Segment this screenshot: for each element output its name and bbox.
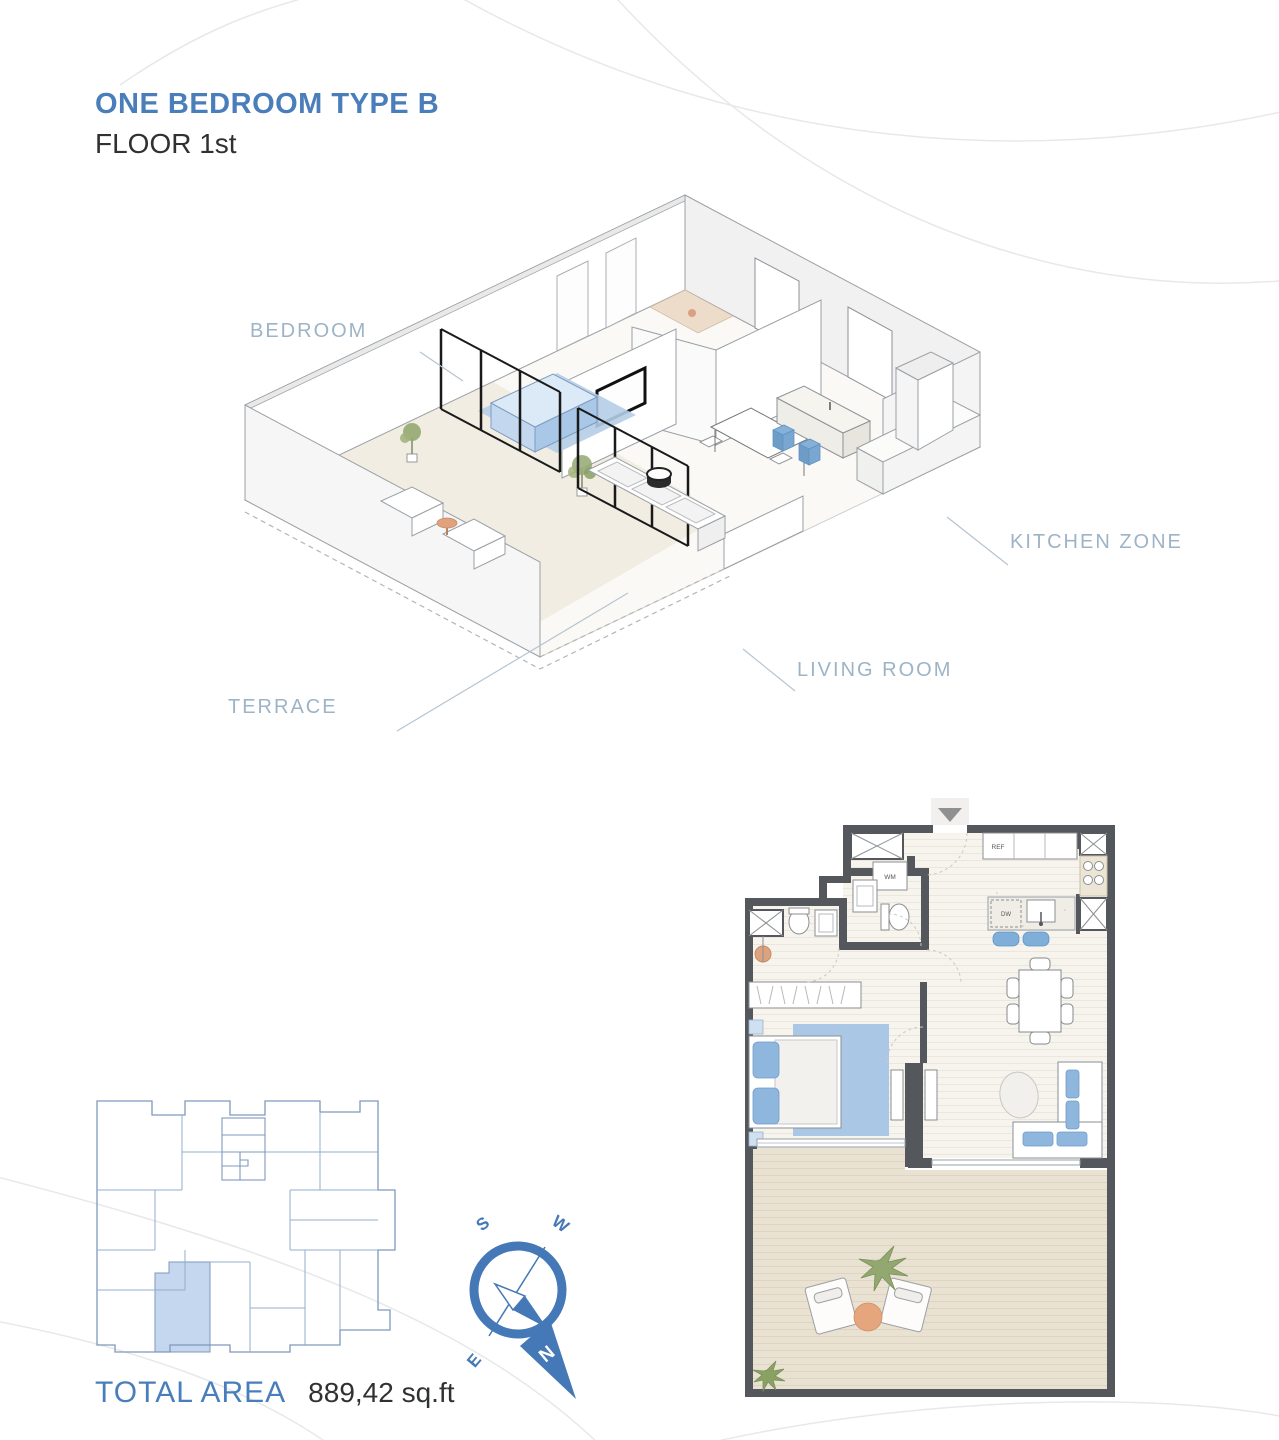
kitchen-counter-ref: REF [983, 833, 1077, 859]
compass-s: S [473, 1213, 494, 1235]
plan-terrace-floor [753, 1148, 1107, 1389]
terrace-table [854, 1303, 882, 1331]
svg-text:DW: DW [1001, 912, 1011, 918]
total-area-value: 889,42 sq.ft [308, 1377, 454, 1408]
total-area: TOTAL AREA889,42 sq.ft [95, 1376, 455, 1410]
keyplan-highlight-unit [155, 1262, 210, 1352]
kitchen-island: DW [988, 892, 1075, 930]
floor-plan-2d: WM [735, 798, 1125, 1418]
total-area-label: TOTAL AREA [95, 1376, 286, 1409]
label-bedroom: BEDROOM [250, 320, 367, 343]
wardrobe [749, 982, 861, 1008]
compass-w: W [548, 1212, 573, 1237]
floorplan-page: ONE BEDROOM TYPE B FLOOR 1st [0, 0, 1279, 1440]
tv-console-living [925, 1070, 937, 1120]
label-living-room: LIVING ROOM [797, 659, 952, 682]
stove [1080, 856, 1107, 896]
label-kitchen-zone: KITCHEN ZONE [1010, 531, 1183, 554]
svg-text:REF: REF [992, 844, 1005, 851]
tv-console-bedroom [891, 1070, 903, 1120]
compass-e: E [463, 1350, 485, 1371]
label-terrace: TERRACE [228, 696, 338, 719]
bed [749, 1020, 889, 1146]
keyplan-units [97, 1112, 378, 1352]
keyplan-outline [97, 1101, 395, 1352]
svg-text:WM: WM [884, 874, 896, 881]
terrace-glass-door [932, 1160, 1080, 1165]
keyplan-core [222, 1118, 265, 1180]
washing-machine: WM [873, 862, 907, 890]
compass: S W E N [455, 1200, 605, 1420]
keyplan [90, 1090, 410, 1365]
